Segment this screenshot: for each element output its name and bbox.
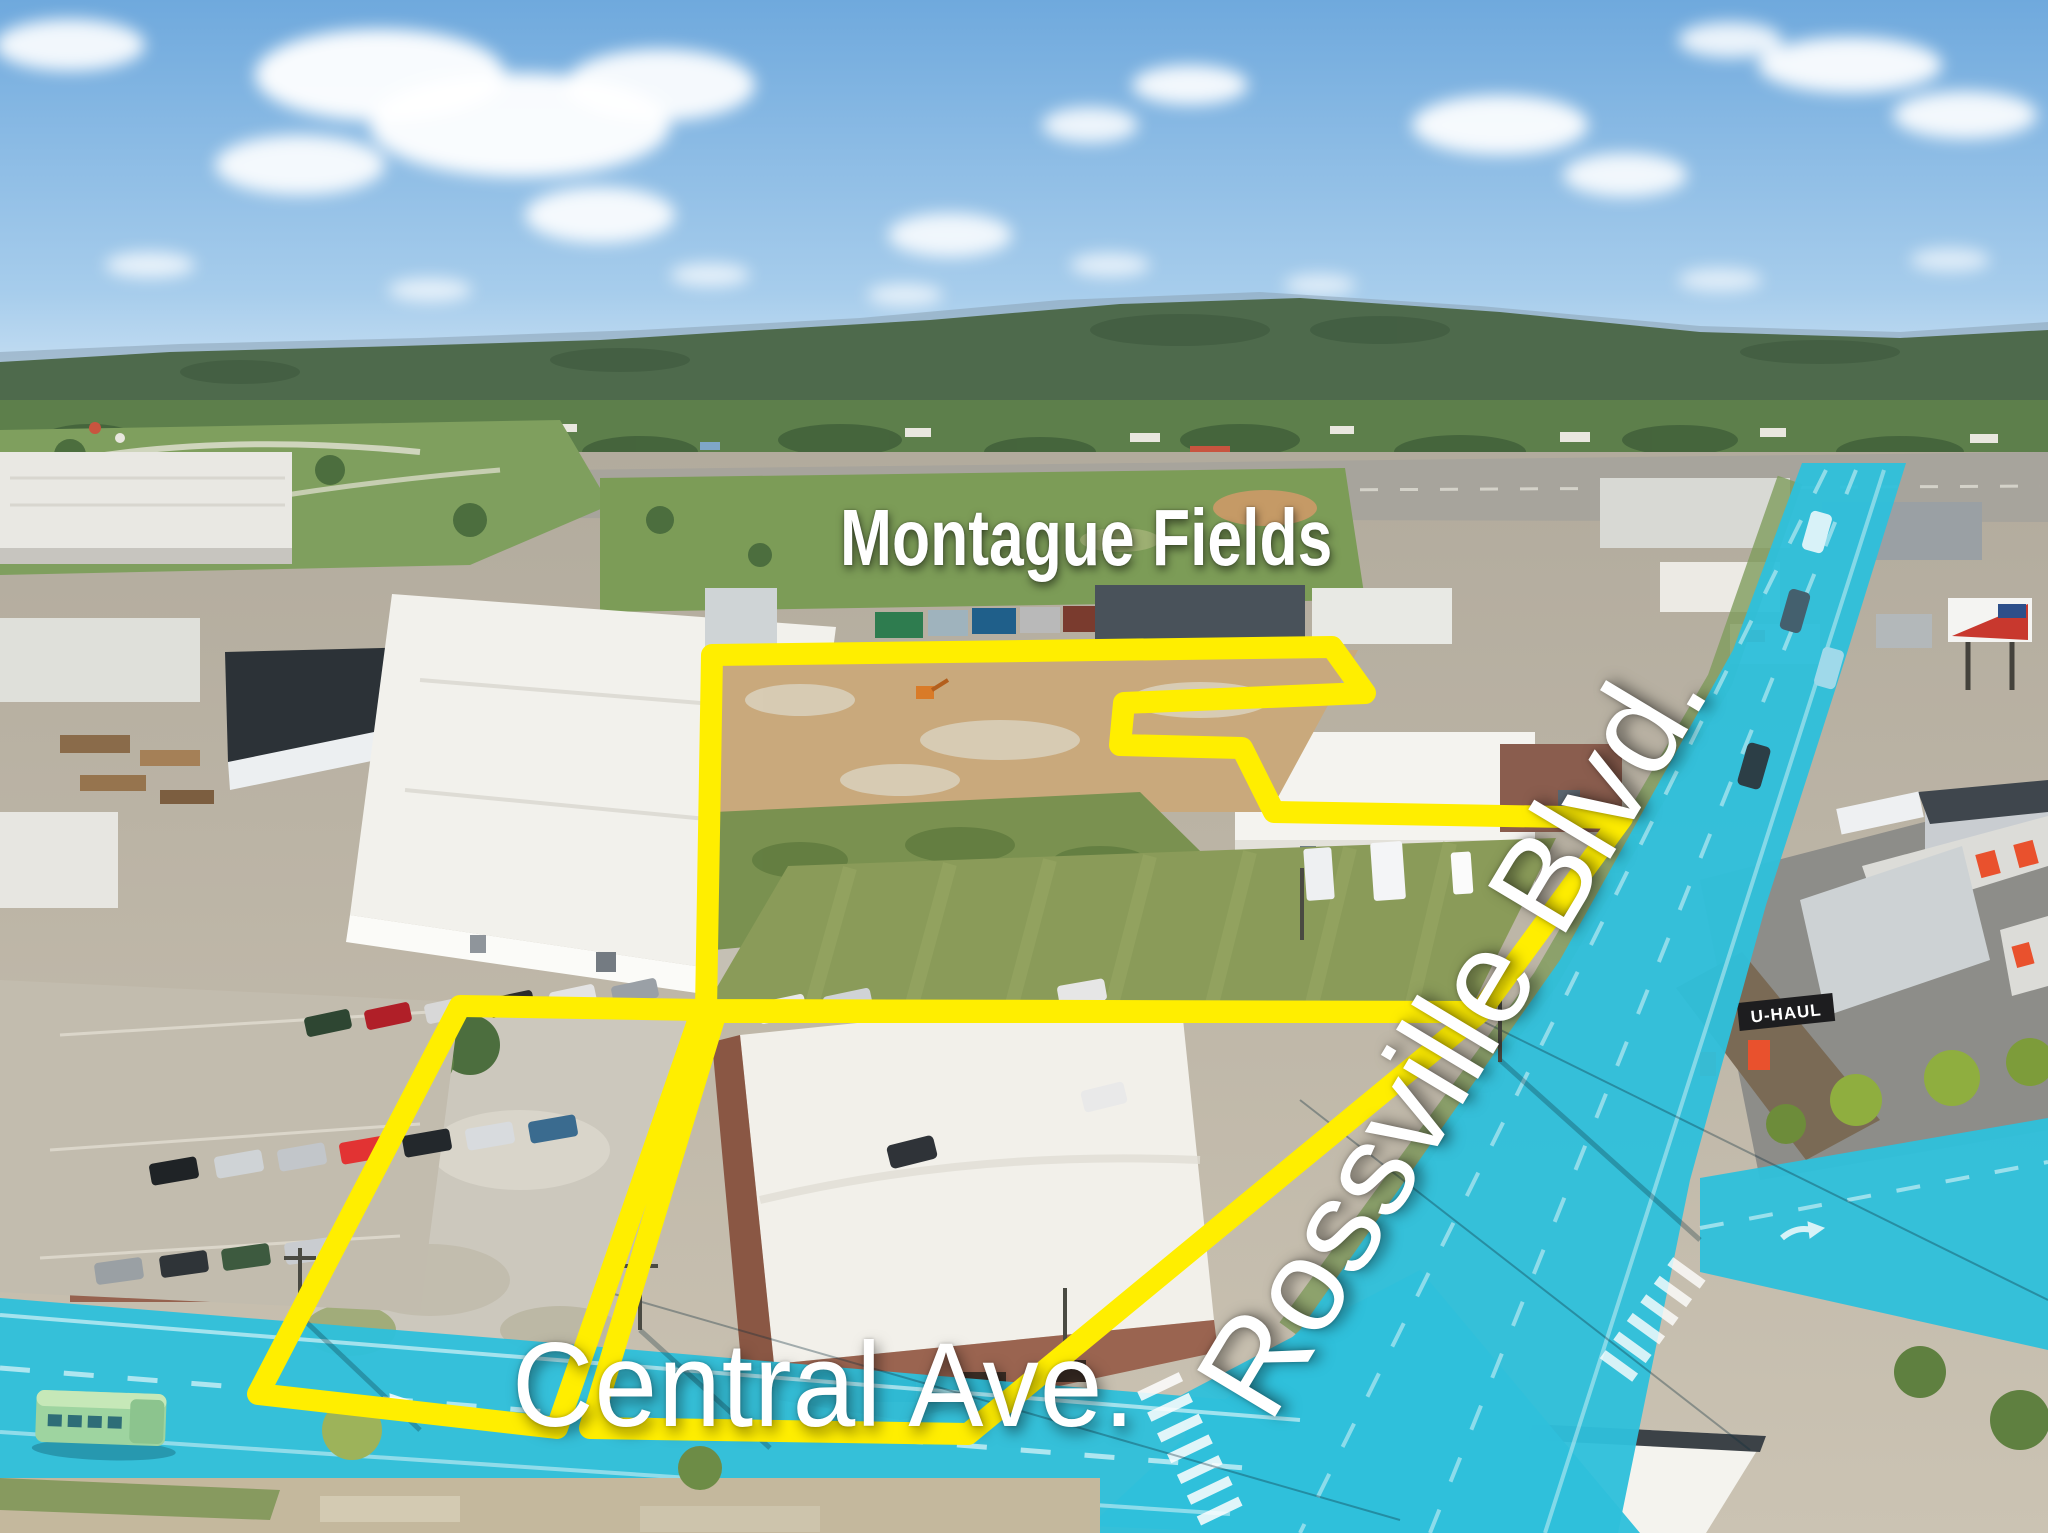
warehouse-topleft	[0, 452, 292, 564]
aerial-scene: U-HAUL	[0, 0, 2048, 1533]
aerial-photo: U-HAUL	[0, 0, 2048, 1533]
property-name-label: Montague Fields	[840, 492, 1332, 584]
street-label-central: Central Ave.	[512, 1316, 1136, 1454]
warehouse-left-a	[0, 618, 200, 702]
uhaul-orange-box-a	[1748, 1040, 1770, 1070]
warehouse-left-b	[0, 812, 118, 908]
box-truck	[1370, 841, 1406, 901]
box-truck	[1303, 847, 1335, 901]
school-bus	[31, 1390, 177, 1463]
